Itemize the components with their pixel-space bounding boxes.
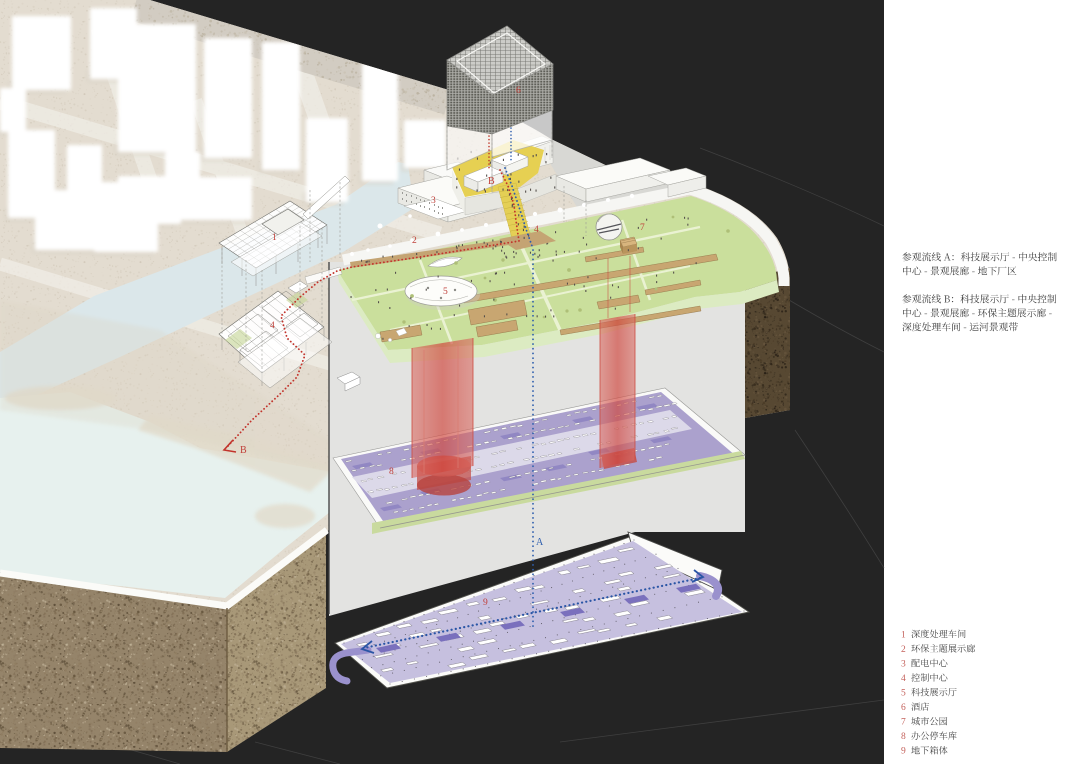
svg-text:3: 3	[901, 659, 906, 669]
svg-text:5: 5	[901, 689, 906, 699]
svg-text:7: 7	[901, 718, 906, 728]
svg-text:2: 2	[901, 645, 906, 655]
svg-text:4: 4	[270, 321, 275, 331]
svg-text:A: A	[536, 537, 544, 548]
svg-text:7: 7	[640, 223, 645, 233]
svg-text:4: 4	[901, 674, 906, 684]
svg-text:8: 8	[389, 467, 394, 477]
svg-text:4: 4	[534, 225, 539, 235]
svg-text:8: 8	[901, 732, 906, 742]
svg-text:1: 1	[901, 630, 906, 640]
svg-text:6: 6	[901, 703, 906, 713]
svg-text:B: B	[488, 176, 495, 187]
svg-text:B: B	[240, 445, 247, 456]
svg-text:9: 9	[901, 747, 906, 757]
svg-text:5: 5	[443, 287, 448, 297]
svg-text:1: 1	[272, 233, 277, 243]
svg-text:2: 2	[412, 236, 417, 246]
svg-text:3: 3	[431, 196, 436, 206]
svg-text:6: 6	[516, 86, 521, 96]
svg-text:9: 9	[483, 598, 488, 608]
